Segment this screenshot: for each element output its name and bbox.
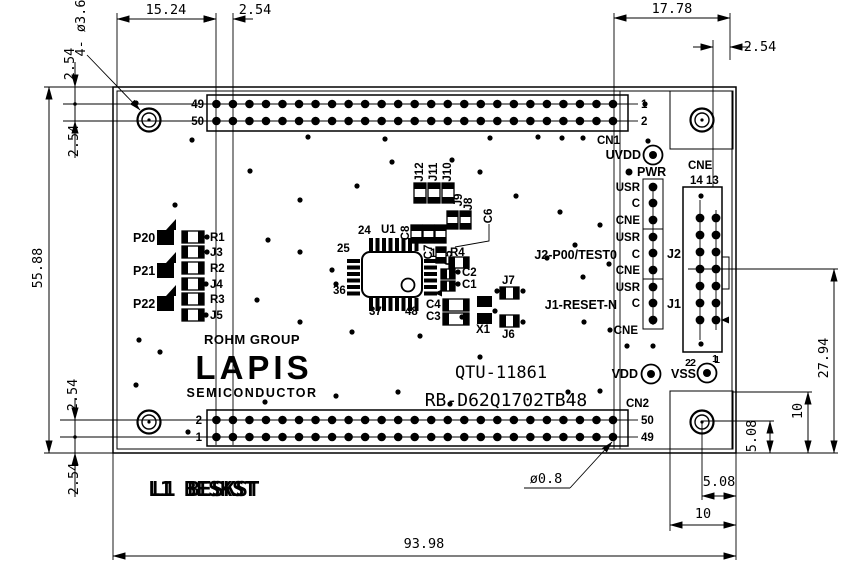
via-dot (305, 134, 310, 139)
cn2-pin (460, 433, 469, 442)
dim-2-54-left-1: 2.54 (62, 48, 78, 81)
j7-label: J7 (502, 275, 515, 287)
via-dot (382, 136, 387, 141)
cn1-pin (410, 117, 419, 126)
j8-label: J8 (463, 197, 475, 210)
cn2-pin2-label: 2 (196, 415, 202, 427)
cn2-pin (212, 416, 221, 425)
cn1-pin2-label: 2 (641, 116, 647, 128)
cn1-pin (609, 117, 618, 126)
board-title: QTU-11861 (455, 363, 547, 383)
c4-label: C4 (426, 299, 441, 311)
via-dot (642, 101, 647, 106)
component-pad (449, 257, 455, 268)
cne-connector (683, 187, 729, 352)
via-dot (133, 382, 138, 387)
via-dot (157, 349, 162, 354)
strip-row-cne-2: CNE (616, 265, 641, 277)
cn2-pin (377, 433, 386, 442)
dim-10-horizontal: 10 (695, 506, 711, 522)
cn2-pin (460, 416, 469, 425)
x1-crystal (477, 296, 492, 324)
cn2-pin (609, 416, 618, 425)
led-p22 (157, 285, 176, 311)
cn1-pin (477, 117, 486, 126)
cn1-pin (592, 100, 601, 109)
cn2-pin (295, 416, 304, 425)
cn1-pin (394, 100, 403, 109)
pcb-mechanical-drawing: 15.24 2.54 4- ø3.6 2.54 2.54 55.88 2.54 … (0, 0, 850, 571)
u1-label: U1 (381, 224, 396, 236)
via-dot (572, 242, 577, 247)
u1-pin24-label: 24 (358, 225, 371, 237)
via-dot (203, 312, 208, 317)
component-pad (182, 246, 188, 258)
cne-bottom-1: 1 (712, 353, 718, 365)
c6-label: C6 (483, 209, 495, 224)
component-pad (513, 287, 519, 299)
u1-pin37-label: 37 (369, 306, 382, 318)
cn1-pin (510, 117, 519, 126)
via-dot (650, 343, 655, 348)
cne-pin (712, 282, 721, 291)
cn1-pin (427, 100, 436, 109)
via-dot (449, 157, 454, 162)
component-pad (449, 281, 455, 291)
cn1-pin (543, 117, 552, 126)
cn1-pin (410, 100, 419, 109)
via-dot (333, 281, 338, 286)
cne-pin (696, 282, 705, 291)
cn2-pin (377, 416, 386, 425)
u1-pin (382, 238, 386, 251)
u1-pin1-dimple (402, 279, 415, 292)
led-p20 (157, 219, 176, 245)
r1-label: R1 (210, 232, 225, 244)
u1-pin (424, 279, 437, 283)
via-dot (597, 222, 602, 227)
uvdd-label: UVDD (606, 148, 641, 162)
component-pad (442, 183, 454, 189)
component-pad (436, 247, 446, 253)
cne-pin (696, 214, 705, 223)
cn2-pin (526, 416, 535, 425)
cn1-pin (443, 117, 452, 126)
cn1-pin (394, 117, 403, 126)
via-dot (189, 137, 194, 142)
via-dot (580, 135, 585, 140)
cn1-pin (609, 100, 618, 109)
component-pad (463, 299, 469, 311)
u1-pin (424, 266, 437, 270)
cn2-pin (229, 433, 238, 442)
via-dot (204, 234, 209, 239)
component-pad (436, 257, 446, 263)
strip-pin (649, 299, 658, 308)
cn2-pin (212, 433, 221, 442)
j12-label: J12 (414, 162, 426, 181)
u1-pin (376, 238, 380, 251)
cn1-pin (311, 100, 320, 109)
via-dot (447, 401, 452, 406)
cne-pin (712, 316, 721, 325)
via-dot (624, 343, 629, 348)
u1-pin (395, 298, 399, 311)
dim-2-54-bottom-2: 2.54 (66, 463, 82, 496)
component-pad (198, 293, 204, 305)
via-dot (459, 314, 464, 319)
cn1-pin (576, 100, 585, 109)
component-pad (463, 257, 469, 268)
component-pad (513, 315, 519, 327)
component-pad (423, 237, 434, 243)
cn2-label: CN2 (626, 398, 649, 410)
cn2-pin (427, 433, 436, 442)
via-dot (477, 354, 482, 359)
cn1-pin (262, 117, 271, 126)
u1-pin (347, 285, 360, 289)
board-part-number: RB-D62Q1702TB48 (425, 390, 588, 411)
cne-pin (696, 248, 705, 257)
component-pad (182, 262, 188, 274)
via-dot (520, 319, 525, 324)
u1-pin (347, 266, 360, 270)
c7-label: C7 (423, 245, 435, 260)
cn2-pin (262, 416, 271, 425)
via-dot (580, 274, 585, 279)
cn2-pin1-label: 1 (196, 432, 203, 444)
via-dot (535, 134, 540, 139)
component-pad (182, 293, 188, 305)
cn2-pin (311, 416, 320, 425)
via-dot (262, 399, 267, 404)
cn2-pin (344, 416, 353, 425)
cn2-pin (592, 433, 601, 442)
component-pad (460, 211, 471, 217)
u1-pin (347, 292, 360, 296)
cn1-pin (460, 100, 469, 109)
component-pad (463, 313, 469, 325)
cne-index-dot (698, 341, 703, 346)
via-dot (557, 209, 562, 214)
via-dot (329, 267, 334, 272)
cn1-pin (278, 117, 287, 126)
component-pad (435, 225, 446, 231)
via-dot (513, 193, 518, 198)
cn2-pin (361, 433, 370, 442)
cn2-pin (328, 433, 337, 442)
dim-17-78: 17.78 (652, 1, 693, 17)
j5-label: J5 (210, 310, 223, 322)
cne-pin (712, 299, 721, 308)
cn2-pin (229, 416, 238, 425)
cn1-pin (592, 117, 601, 126)
j3-label: J3 (210, 247, 223, 259)
cn1-pin (295, 100, 304, 109)
via-dot (645, 138, 650, 143)
u1-pin (389, 298, 393, 311)
strip-row-usr-3: USR (616, 282, 641, 294)
cn1-pin (526, 117, 535, 126)
cn2-pin (361, 416, 370, 425)
pwr-dot (626, 169, 633, 176)
component-pad (449, 269, 455, 279)
mounting-hole (138, 109, 161, 132)
j6-label: J6 (502, 329, 515, 341)
dim-2-54-right: 2.54 (744, 39, 777, 55)
dim-5-08-vertical: 5.08 (744, 420, 760, 453)
cn2-pin (543, 433, 552, 442)
dim-15-24: 15.24 (146, 2, 187, 18)
via-dot (354, 183, 359, 188)
cn1-pin (344, 117, 353, 126)
component-pad (198, 231, 204, 243)
cn2-pin (328, 416, 337, 425)
cn1-pin (510, 100, 519, 109)
cne-pin (696, 299, 705, 308)
via-dot (606, 261, 611, 266)
strip-pin (649, 249, 658, 258)
cn1-pin (229, 117, 238, 126)
cn1-pin (427, 117, 436, 126)
component-pad (443, 299, 449, 311)
cn2-pin50-label: 50 (641, 415, 654, 427)
via-dot (455, 269, 460, 274)
via-dot (254, 297, 259, 302)
via-dot (185, 429, 190, 434)
component-pad (443, 313, 449, 325)
cne-bottom-2: 2 (690, 357, 696, 369)
strip-row-usr-2: USR (616, 232, 641, 244)
cn2-pin (311, 433, 320, 442)
strip-row-c-1: C (632, 198, 640, 210)
cn2-pin (477, 433, 486, 442)
via-dot (487, 135, 492, 140)
component-pad (447, 211, 458, 217)
component-pad (441, 269, 447, 279)
component-pad (442, 197, 454, 203)
component-pad (423, 225, 434, 231)
j1-label: J1 (667, 297, 681, 311)
component-pad (414, 197, 426, 203)
cn2-pin (278, 433, 287, 442)
via-dot (265, 237, 270, 242)
strip-pin (649, 316, 658, 325)
component-pad (428, 197, 440, 203)
cn1-pin (493, 117, 502, 126)
p20-label: P20 (133, 231, 155, 245)
cn2-pin (592, 416, 601, 425)
cn2-pin (559, 416, 568, 425)
via-dot (133, 100, 138, 105)
u1-pin (382, 298, 386, 311)
via-dot (333, 393, 338, 398)
via-dot (204, 249, 209, 254)
component-pad (414, 183, 426, 189)
via-dot (565, 389, 570, 394)
via-dot (136, 337, 141, 342)
c1-label: C1 (462, 279, 477, 291)
strip-pin (649, 266, 658, 275)
cn1-pin (361, 100, 370, 109)
via-dot (297, 249, 302, 254)
cn2-connector (207, 410, 638, 446)
via-dot (597, 388, 602, 393)
u1-pin (389, 238, 393, 251)
via-dot (172, 202, 177, 207)
led-p21 (157, 252, 176, 278)
p21-label: P21 (133, 264, 155, 278)
dim-2-54-top: 2.54 (239, 2, 272, 18)
via-dot (229, 357, 234, 362)
cn1-pin (245, 117, 254, 126)
cn1-pin (262, 100, 271, 109)
logo-rohm-group: ROHM GROUP (204, 332, 300, 347)
p22-label: P22 (133, 297, 155, 311)
component-pad (447, 223, 458, 229)
cn1-pin (543, 100, 552, 109)
r2-label: R2 (210, 263, 225, 275)
mounting-hole (691, 109, 714, 132)
cn1-pin (477, 100, 486, 109)
via-dot (477, 169, 482, 174)
silk-misc-text-overstrike: L1 BESKST (152, 477, 260, 501)
u1-pin25-label: 25 (337, 243, 350, 255)
u1-pin (424, 272, 437, 276)
cne-pin (696, 265, 705, 274)
cne-pin (712, 265, 721, 274)
cn2-pin (410, 416, 419, 425)
cne-label: CNE (688, 160, 713, 172)
dim-10-vertical: 10 (790, 403, 806, 419)
strip-row-usr-1: USR (616, 182, 641, 194)
cn1-pin (559, 100, 568, 109)
via-dot (559, 135, 564, 140)
component-pad (428, 183, 440, 189)
via-dot (607, 327, 612, 332)
cn2-pin (427, 416, 436, 425)
via-dot (395, 389, 400, 394)
strip-pin (649, 283, 658, 292)
cn2-pin (295, 433, 304, 442)
component-pad (182, 309, 188, 321)
cn2-pin (510, 416, 519, 425)
cne-pin (712, 248, 721, 257)
u1-pin (424, 285, 437, 289)
via-dot (297, 197, 302, 202)
pwr-label: PWR (637, 165, 666, 179)
cn1-pin (377, 100, 386, 109)
cn1-pin (328, 100, 337, 109)
component-pad (460, 223, 471, 229)
u1-pin36-label: 36 (333, 285, 346, 297)
u1-pin (424, 292, 437, 296)
cn2-pin (443, 433, 452, 442)
cn1-pin (361, 117, 370, 126)
vss-pad (698, 364, 717, 383)
strip-pin (649, 216, 658, 225)
j1-signal-label: J1-RESET-N (545, 298, 617, 312)
strip-row-cne-3: CNE (614, 325, 639, 337)
cn2-pin (493, 416, 502, 425)
cn1-pin (526, 100, 535, 109)
cne-index-dot (698, 193, 703, 198)
dim-55-88: 55.88 (30, 248, 46, 289)
component-pad (182, 278, 188, 290)
via-dot (492, 308, 497, 313)
component-pad (411, 237, 422, 243)
cn1-pin (377, 117, 386, 126)
cn2-pin (278, 416, 287, 425)
component-pad (500, 287, 506, 299)
cn1-pin (212, 117, 221, 126)
vdd-label: VDD (612, 367, 638, 381)
cn1-pin (460, 117, 469, 126)
u1-pin (395, 238, 399, 251)
u1-pin (347, 259, 360, 263)
cn1-pin (295, 117, 304, 126)
cn1-pin (443, 100, 452, 109)
dim-2-54-left-2: 2.54 (66, 125, 82, 158)
strip-pin (649, 233, 658, 242)
via-dot (494, 288, 499, 293)
cn2-pin (493, 433, 502, 442)
cn2-pin (410, 433, 419, 442)
strip-pin (649, 183, 658, 192)
cn1-pin (212, 100, 221, 109)
cn1-pin (493, 100, 502, 109)
cn1-pin (576, 117, 585, 126)
c2-label: C2 (462, 267, 477, 279)
dim-27-94: 27.94 (816, 338, 832, 379)
j10-label: J10 (442, 162, 454, 181)
edge-tab (722, 257, 729, 289)
via-dot (520, 288, 525, 293)
c3-label: C3 (426, 311, 441, 323)
cn2-pin (394, 416, 403, 425)
component-pad (441, 281, 447, 291)
component-pad (198, 262, 204, 274)
cne-pin (712, 214, 721, 223)
via-dot (297, 319, 302, 324)
component-pad (198, 246, 204, 258)
cn2-pin (477, 416, 486, 425)
cn2-pin (543, 416, 552, 425)
cn1-pin (278, 100, 287, 109)
cne-col-labels: 14 13 (690, 175, 719, 187)
strip-row-c-2: C (632, 249, 640, 261)
r3-label: R3 (210, 294, 225, 306)
dim-5-08-horizontal: 5.08 (703, 474, 736, 490)
cn1-pin (229, 100, 238, 109)
u1-pin (347, 279, 360, 283)
strip-row-c-3: C (632, 298, 640, 310)
cn1-label: CN1 (597, 135, 621, 147)
component-pad (198, 309, 204, 321)
component-pad (182, 231, 188, 243)
c8-label: C8 (400, 225, 412, 240)
strip-pin (649, 199, 658, 208)
cn1-pin (245, 100, 254, 109)
cn2-pin49-label: 49 (641, 432, 654, 444)
component-pad (435, 237, 446, 243)
cne-pin (696, 316, 705, 325)
cn2-pin (510, 433, 519, 442)
vss-label: VSS (671, 367, 696, 381)
cn1-pin (344, 100, 353, 109)
j11-label: J11 (428, 162, 440, 181)
via-dot (349, 329, 354, 334)
